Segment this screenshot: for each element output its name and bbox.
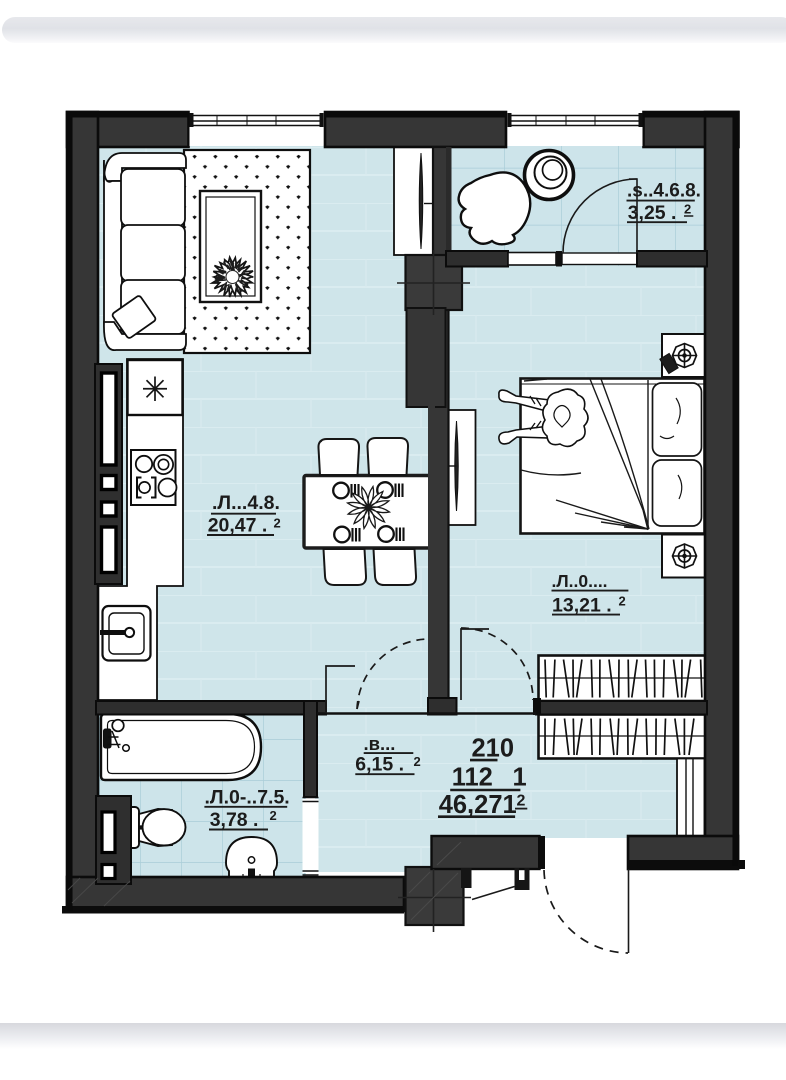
svg-text:6,15 .: 6,15 . [355, 753, 404, 775]
svg-text:1: 1 [513, 764, 527, 792]
svg-text:2: 2 [684, 202, 691, 217]
svg-text:2: 2 [517, 793, 526, 810]
svg-text:2: 2 [414, 754, 421, 769]
svg-text:46,271: 46,271 [439, 791, 517, 819]
svg-text:.в...: .в... [364, 733, 396, 754]
svg-text:13,21 .: 13,21 . [552, 595, 612, 617]
svg-text:2: 2 [619, 594, 626, 609]
svg-text:112: 112 [452, 764, 493, 792]
svg-text:.s..4.6.8.: .s..4.6.8. [627, 181, 701, 202]
svg-text:3,78 .: 3,78 . [210, 809, 259, 831]
svg-text:2: 2 [270, 808, 277, 823]
svg-text:.Л...4.8.: .Л...4.8. [212, 492, 280, 514]
svg-text:3,25 .: 3,25 . [628, 202, 677, 224]
svg-text:2: 2 [274, 516, 281, 531]
svg-text:210: 210 [472, 734, 515, 762]
svg-text:.Л..0....: .Л..0.... [552, 571, 608, 591]
svg-text:.Л.0-..7.5.: .Л.0-..7.5. [205, 787, 290, 809]
svg-text:20,47 .: 20,47 . [208, 515, 268, 537]
